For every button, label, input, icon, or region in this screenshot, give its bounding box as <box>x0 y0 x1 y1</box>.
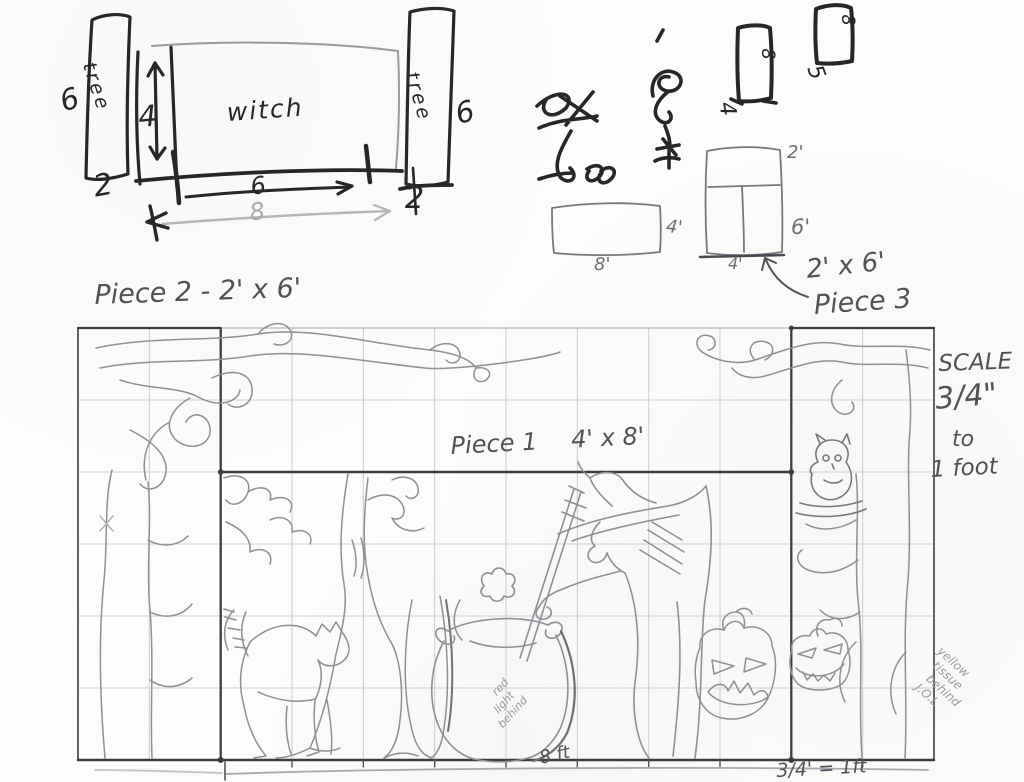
sketch-stroke <box>364 478 401 758</box>
sketch-stroke <box>100 352 560 369</box>
pumpkin1-frown <box>708 681 768 705</box>
witch-skirt-line <box>673 602 680 756</box>
piece1-dim: 4' x 8' <box>571 424 645 453</box>
owl-body <box>810 440 851 500</box>
sketch-stroke <box>310 474 348 748</box>
cauldron-lip-right <box>545 622 562 638</box>
sketch-stroke <box>150 604 192 616</box>
witch-front <box>625 573 649 758</box>
scanned-sketch-page: { "colors": { "paper": "#fcfcfa", "ink":… <box>0 0 1024 782</box>
sketch-stroke <box>520 489 581 661</box>
sketch-stroke <box>832 380 854 414</box>
scale-note-line3: to <box>952 428 974 451</box>
cat-head <box>316 622 349 666</box>
witch-face <box>588 522 607 563</box>
sketch-stroke <box>100 470 112 758</box>
owl-eye-right <box>835 455 841 461</box>
tall-rect-inner-v <box>742 187 744 252</box>
sketch-stroke <box>169 398 210 446</box>
witch-backdrop-label: witch <box>226 95 304 127</box>
witch-arm <box>539 571 621 607</box>
sketch-stroke <box>258 324 292 345</box>
sketch-stroke <box>840 642 856 702</box>
callout-arrow <box>766 260 808 297</box>
piece1-name: Piece 1 <box>450 429 538 459</box>
owl-eye-left <box>823 455 829 461</box>
sketch-stroke <box>697 335 715 352</box>
wide-rect-side-label: 4' <box>665 218 683 239</box>
sketch-stroke <box>474 368 490 382</box>
sketch-canvas: 6 tree 4 witch 2 6 8 2 6 tree 8 4 8 5 4'… <box>0 0 1024 782</box>
sketch-stroke <box>702 343 930 363</box>
small-rect-1-side-label: 8 <box>757 48 776 60</box>
piece3-name-callout: Piece 3 <box>813 285 912 320</box>
ink-scribble-1 <box>537 92 614 183</box>
pumpkin-frowning-figure <box>695 608 775 719</box>
backdrop-right-edge <box>396 51 399 168</box>
sketch-stroke <box>454 600 462 640</box>
tree-right-figure <box>697 335 930 758</box>
witch-back <box>695 486 711 758</box>
sketch-stroke <box>405 600 432 758</box>
sketch-stroke <box>130 430 166 489</box>
corner-dot <box>218 469 224 475</box>
owl-branch <box>796 501 866 516</box>
span-line-6 <box>186 187 350 197</box>
cat-back <box>250 625 316 642</box>
witch-hat-tip <box>578 462 590 478</box>
tall-rect-side-label: 6' <box>791 216 810 238</box>
sketch-stroke <box>806 520 856 529</box>
sketch-stroke <box>212 373 252 408</box>
span-line-8 <box>162 211 390 224</box>
wide-rect <box>552 203 661 255</box>
backdrop-top-edge <box>152 43 398 51</box>
right-panel-width-label: 2 <box>405 183 424 215</box>
column-height-label: 4 <box>137 100 158 132</box>
cauldron-rim <box>448 619 548 631</box>
sketch-stroke <box>392 477 418 498</box>
cat-tail <box>225 610 248 656</box>
scale-note-line1: SCALE <box>938 349 1013 376</box>
corner-dot <box>218 757 224 763</box>
span-top-label: 6 <box>249 173 268 200</box>
pumpkin2-outline <box>790 629 850 690</box>
span-bottom-label: 8 <box>248 199 267 226</box>
cat-belly <box>258 692 315 701</box>
sketch-stroke <box>368 495 424 531</box>
broomstick <box>520 486 586 661</box>
sketch-stroke <box>226 522 271 564</box>
bone-detail <box>481 568 515 601</box>
sketch-stroke <box>431 596 447 758</box>
sketch-stroke <box>270 518 311 544</box>
scale-note-line4: 1 foot <box>930 454 998 482</box>
owl-beak <box>832 464 834 469</box>
ink-scribble-2 <box>652 30 681 168</box>
wide-rect-bottom-label: 8' <box>594 256 610 275</box>
small-rect-2-side-label: 8 <box>837 14 856 26</box>
tall-rect-inner-h <box>708 185 780 187</box>
witch-hat-crown <box>590 473 656 507</box>
sketch-stroke <box>224 476 292 512</box>
small-rect-1 <box>737 25 771 101</box>
sketch-stroke <box>820 610 860 619</box>
witch-hair-hatch <box>640 522 684 574</box>
pumpkin2-eyes <box>798 644 842 658</box>
cat-chest <box>315 660 321 700</box>
tall-rect-top-label: 2' <box>787 144 803 163</box>
backdrop-leg-right <box>366 146 370 182</box>
owl-breast <box>824 480 842 483</box>
sketch-stroke <box>148 482 152 758</box>
top-right-sketches <box>537 5 853 183</box>
sketch-stroke <box>905 350 911 758</box>
sketch-stroke <box>891 652 906 714</box>
pumpkin-grinning-figure <box>790 618 850 690</box>
sketch-stroke <box>732 361 928 378</box>
sketch-stroke <box>798 550 858 573</box>
corner-dot <box>789 469 795 475</box>
sketch-stroke <box>226 492 248 504</box>
witch-neck <box>607 553 625 573</box>
corner-dot <box>789 326 794 331</box>
tall-rect-bottom-label: 4' <box>728 256 743 273</box>
cauldron-surface <box>470 641 536 647</box>
bottom-dim-line-left <box>95 770 222 773</box>
sketch-stroke <box>150 678 192 687</box>
scale-note-line2: 3/4" <box>934 379 999 416</box>
